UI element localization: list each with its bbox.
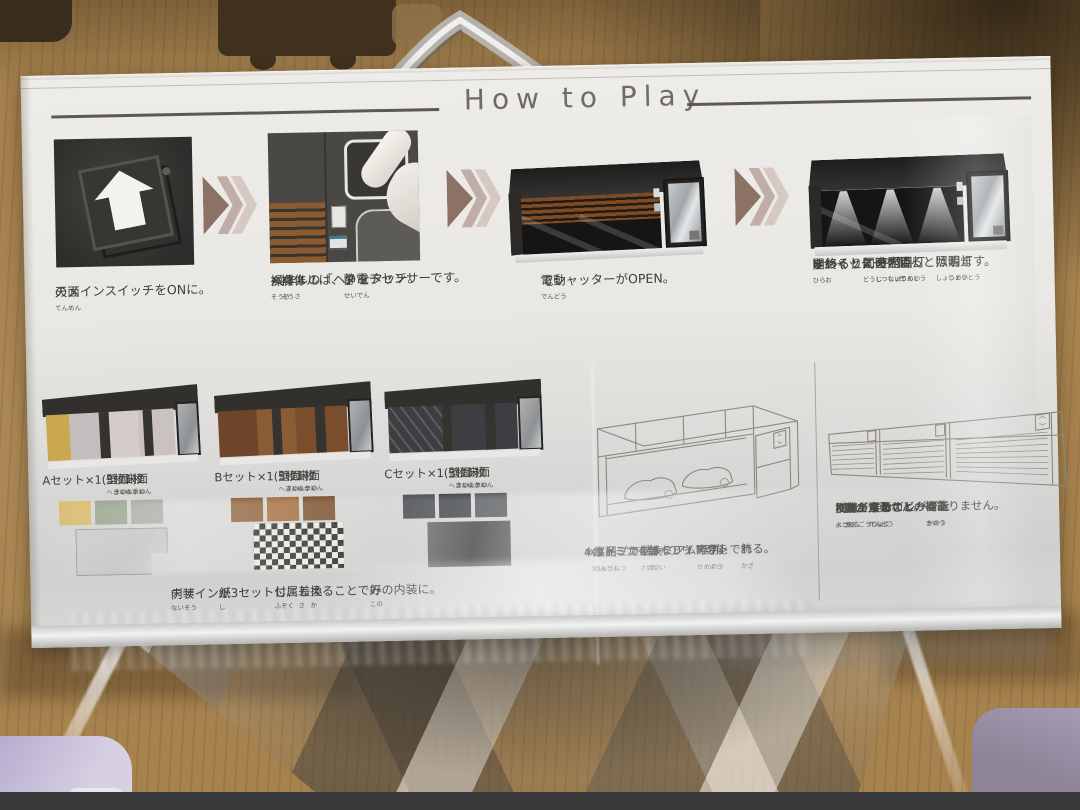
interior-walls	[46, 408, 176, 461]
step1-main-switch-photo	[54, 137, 194, 268]
pillar	[441, 405, 452, 452]
photo-scene: How to Play	[0, 0, 1080, 810]
panel-button	[957, 197, 963, 205]
clear-cover	[668, 182, 702, 243]
set-c-interior-photo	[384, 379, 544, 462]
next-step-arrow	[203, 175, 264, 234]
garage-opening	[520, 192, 662, 254]
caption-line: 天面てんめんのメインスイッチをONに。	[55, 278, 212, 302]
product-box-back-panel: How to Play	[21, 56, 1062, 648]
set-c-floor-swatch	[427, 521, 511, 568]
interior-walls	[218, 405, 349, 457]
set-a-wall-swatch	[131, 499, 163, 524]
panel-button	[654, 204, 660, 212]
pillar	[485, 403, 496, 450]
set-a-label: Aセット×1(壁面へきめん3枚まい、床面ゆかめん1枚まい)	[42, 472, 137, 488]
caption-line: ※シャッターを閉とじると照明しょうめいは消灯しょうとうします。	[812, 250, 997, 275]
info-line: ※動うごきが連動れんどうするなどの機能きのうはありません。	[835, 495, 1006, 519]
panel-button	[653, 189, 659, 198]
garage-opening	[821, 186, 965, 248]
set-b-wall-swatch	[231, 497, 263, 522]
set-b-wall-swatch	[303, 496, 335, 521]
garage-clear-pillar	[663, 177, 707, 248]
set-b-interior-photo	[214, 381, 374, 465]
clear-pillar	[175, 401, 201, 456]
next-step-arrow	[734, 167, 795, 226]
info-line: ※本品ほんぴんはトミカプレミアム専用せんようです。	[584, 540, 730, 562]
garages-row-drawing	[825, 408, 1069, 501]
sticker	[993, 226, 1003, 235]
next-step-arrow	[446, 169, 507, 228]
set-a-wall-swatch	[95, 500, 127, 525]
set-b-floor-swatch	[253, 522, 344, 570]
sticker	[689, 231, 699, 240]
title-rule-left	[51, 108, 439, 119]
interior-walls	[388, 403, 518, 454]
panel-button	[956, 182, 962, 191]
step3-garage-shutter-photo	[507, 160, 707, 263]
clear-pillar	[348, 398, 374, 453]
set-c-wall-swatch	[475, 493, 507, 518]
clear-pillar	[518, 396, 544, 451]
switch-pin	[162, 167, 170, 175]
set-a-interior-photo	[41, 384, 201, 469]
garage-clear-pillar	[966, 170, 1011, 243]
interior-sets-note: 内装ないそうデザイン紙しが3セット付属ふぞくし、差さし換かえることで好このみの内…	[170, 580, 441, 602]
garage-layout-drawing	[583, 389, 814, 535]
step2-touch-panel-photo	[268, 130, 421, 263]
shutter-slats	[269, 202, 326, 263]
set-a-wall-swatch	[59, 501, 91, 526]
set-b-label: Bセット×1(壁面へきめん3枚まい、床面ゆかめん1枚まい)	[214, 469, 309, 485]
section-divider	[814, 363, 820, 601]
caption-line: 電動でんどうでシャッターがOPEN。	[540, 267, 675, 291]
page-title: How to Play	[425, 78, 746, 117]
light-beam	[916, 187, 961, 243]
set-a-floor-swatch	[75, 527, 168, 576]
set-c-wall-swatch	[439, 493, 471, 518]
clear-cover	[971, 176, 1005, 238]
set-c-wall-swatch	[403, 494, 435, 519]
floor-dark-strip	[0, 792, 1080, 810]
step4-garage-lights-photo	[807, 153, 1010, 256]
logo-sticker	[330, 236, 347, 250]
caption-line: ※操作そうさパネルは、静電せいでんタッチセンサーです。	[270, 266, 466, 291]
set-c-label: Cセット×1(壁面へきめん3枚まい、床面ゆかめん1枚まい)	[384, 465, 479, 481]
caution-sticker	[331, 206, 346, 228]
set-b-wall-swatch	[267, 497, 299, 522]
